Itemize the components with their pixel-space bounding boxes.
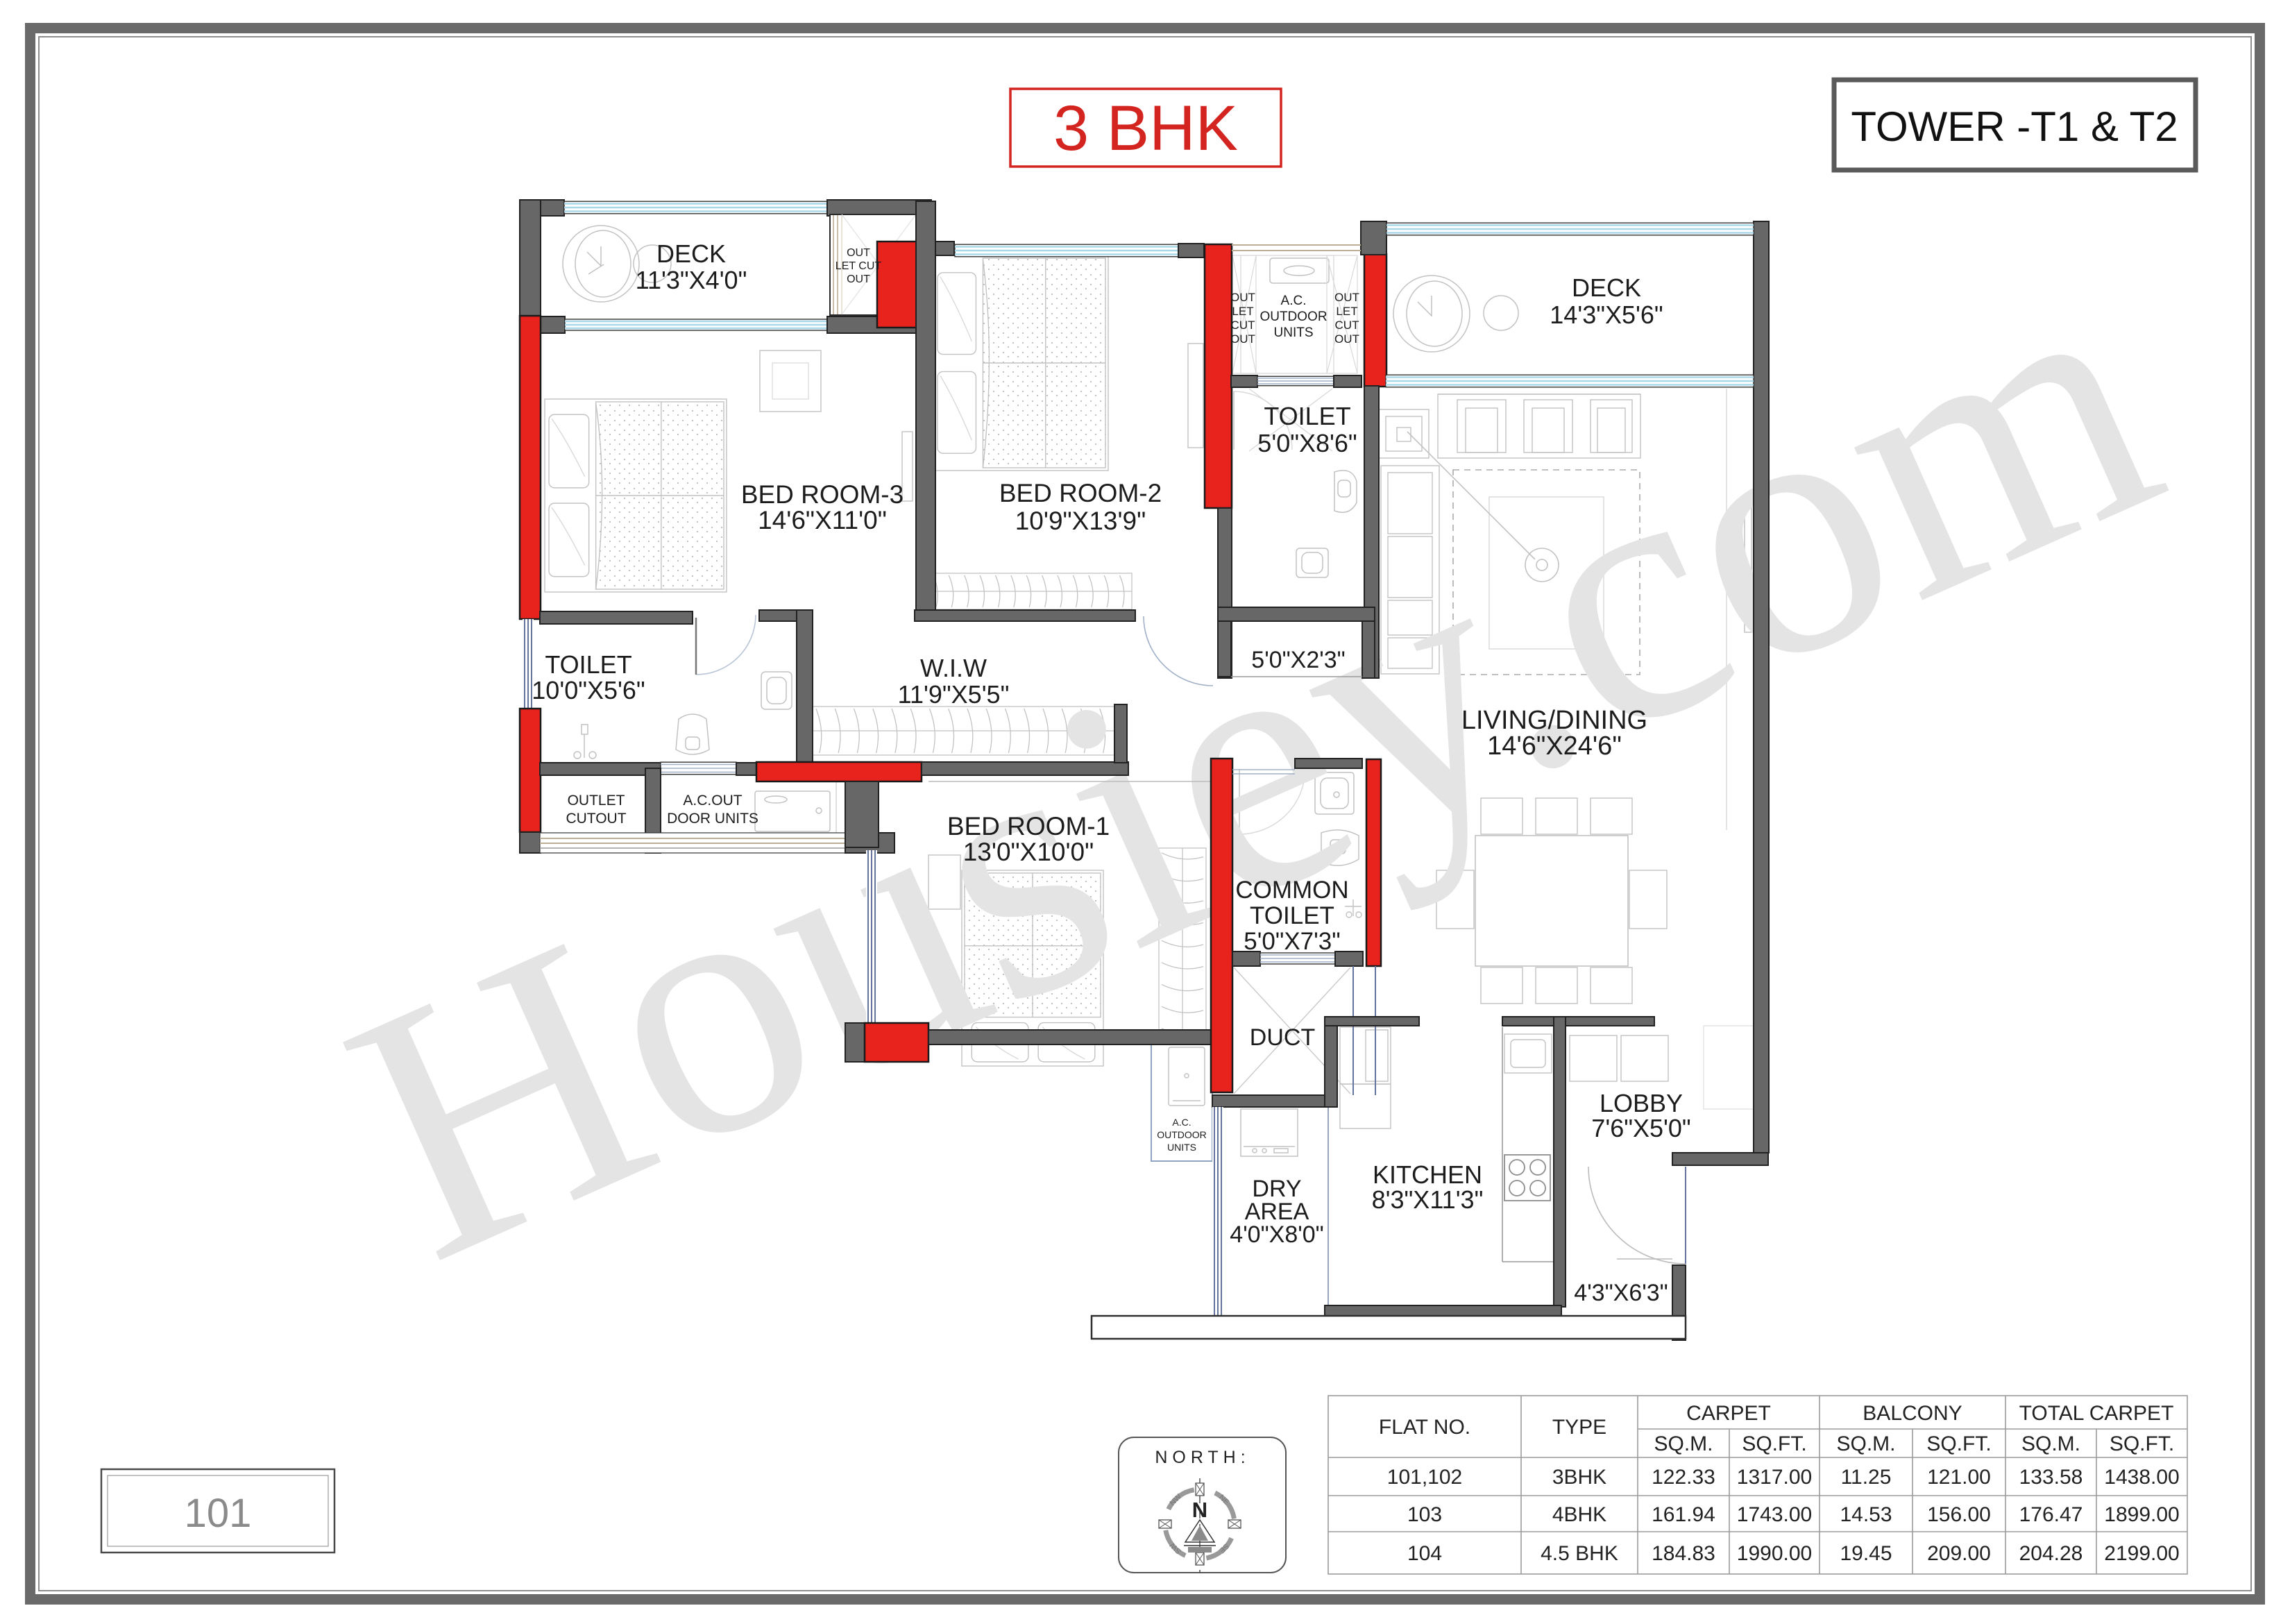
svg-text:BALCONY: BALCONY: [1863, 1402, 1962, 1425]
svg-text:LET: LET: [1336, 305, 1357, 318]
svg-text:14.53: 14.53: [1840, 1503, 1892, 1526]
svg-text:TOILET: TOILET: [545, 650, 631, 679]
svg-text:5'0"X8'6": 5'0"X8'6": [1257, 429, 1357, 457]
svg-text:A.C.OUT: A.C.OUT: [683, 793, 742, 809]
svg-text:161.94: 161.94: [1652, 1503, 1715, 1526]
svg-text:SQ.M.: SQ.M.: [1836, 1432, 1895, 1455]
svg-text:4.5 BHK: 4.5 BHK: [1541, 1542, 1618, 1565]
svg-text:OUT: OUT: [1334, 332, 1359, 346]
svg-text:LET CUT: LET CUT: [836, 260, 882, 272]
svg-text:8'3"X11'3": 8'3"X11'3": [1372, 1185, 1484, 1214]
svg-text:204.28: 204.28: [2019, 1542, 2083, 1565]
svg-text:SQ.M.: SQ.M.: [1654, 1432, 1713, 1455]
svg-text:BED ROOM-1: BED ROOM-1: [947, 812, 1110, 840]
svg-text:11'9"X5'5": 11'9"X5'5": [898, 680, 1010, 709]
svg-text:DECK: DECK: [1572, 273, 1641, 302]
svg-text:1990.00: 1990.00: [1737, 1542, 1812, 1565]
svg-text:SQ.FT.: SQ.FT.: [2110, 1432, 2174, 1455]
svg-text:176.47: 176.47: [2019, 1503, 2083, 1526]
svg-text:SQ.FT.: SQ.FT.: [1742, 1432, 1806, 1455]
svg-text:CARPET: CARPET: [1686, 1402, 1771, 1425]
svg-text:122.33: 122.33: [1652, 1466, 1715, 1489]
svg-text:N: N: [1192, 1498, 1207, 1522]
svg-text:TOILET: TOILET: [1264, 402, 1350, 430]
svg-text:1438.00: 1438.00: [2104, 1466, 2179, 1489]
svg-text:KITCHEN: KITCHEN: [1373, 1160, 1482, 1189]
svg-text:FLAT NO.: FLAT NO.: [1379, 1416, 1470, 1439]
svg-text:DECK: DECK: [656, 239, 726, 268]
svg-text:A.C.: A.C.: [1172, 1117, 1191, 1128]
svg-text:OUT: OUT: [847, 273, 870, 285]
svg-text:DUCT: DUCT: [1250, 1024, 1315, 1051]
svg-text:101,102: 101,102: [1387, 1466, 1462, 1489]
svg-text:7'6"X5'0": 7'6"X5'0": [1591, 1114, 1690, 1142]
svg-text:COMMON: COMMON: [1235, 877, 1348, 904]
svg-text:4'0"X8'0": 4'0"X8'0": [1230, 1221, 1323, 1248]
svg-text:14'6"X11'0": 14'6"X11'0": [758, 506, 887, 534]
svg-text:1899.00: 1899.00: [2104, 1503, 2179, 1526]
svg-text:UNITS: UNITS: [1274, 325, 1314, 340]
svg-text:14'3"X5'6": 14'3"X5'6": [1550, 301, 1663, 329]
svg-text:CUT: CUT: [1231, 319, 1255, 332]
svg-text:121.00: 121.00: [1927, 1466, 1991, 1489]
svg-text:4'3"X6'3": 4'3"X6'3": [1574, 1280, 1668, 1306]
svg-text:10'9"X13'9": 10'9"X13'9": [1015, 507, 1146, 535]
svg-text:TYPE: TYPE: [1552, 1416, 1606, 1439]
svg-text:LET: LET: [1232, 305, 1253, 318]
svg-text:TOWER -T1 & T2: TOWER -T1 & T2: [1851, 103, 2178, 150]
svg-text:11.25: 11.25: [1841, 1466, 1892, 1489]
svg-text:104: 104: [1407, 1542, 1442, 1565]
svg-text:TOTAL CARPET: TOTAL CARPET: [2019, 1402, 2174, 1425]
svg-text:2199.00: 2199.00: [2104, 1542, 2179, 1565]
svg-text:SQ.M.: SQ.M.: [2021, 1432, 2080, 1455]
svg-text:LOBBY: LOBBY: [1600, 1089, 1683, 1117]
svg-text:LIVING/DINING: LIVING/DINING: [1461, 706, 1647, 735]
svg-text:1743.00: 1743.00: [1737, 1503, 1812, 1526]
svg-text:101: 101: [185, 1491, 252, 1536]
svg-text:A.C.: A.C.: [1281, 294, 1307, 308]
svg-text:OUT: OUT: [1230, 291, 1255, 304]
svg-text:184.83: 184.83: [1652, 1542, 1715, 1565]
svg-text:4BHK: 4BHK: [1552, 1503, 1606, 1526]
svg-text:5'0"X2'3": 5'0"X2'3": [1251, 647, 1345, 673]
svg-text:OUTDOOR: OUTDOOR: [1157, 1129, 1207, 1140]
svg-text:3 BHK: 3 BHK: [1053, 93, 1238, 164]
svg-text:11'3"X4'0": 11'3"X4'0": [636, 266, 747, 294]
svg-text:OUT: OUT: [1334, 291, 1359, 304]
svg-text:NORTH:: NORTH:: [1155, 1448, 1250, 1467]
svg-text:103: 103: [1407, 1503, 1442, 1526]
svg-text:CUT: CUT: [1335, 319, 1359, 332]
svg-text:5'0"X7'3": 5'0"X7'3": [1244, 928, 1340, 955]
svg-text:UNITS: UNITS: [1167, 1142, 1196, 1153]
svg-text:BED ROOM-3: BED ROOM-3: [741, 480, 904, 509]
svg-text:156.00: 156.00: [1927, 1503, 1991, 1526]
svg-text:OUT: OUT: [1230, 332, 1255, 346]
svg-text:209.00: 209.00: [1927, 1542, 1991, 1565]
svg-text:13'0"X10'0": 13'0"X10'0": [963, 838, 1094, 866]
svg-text:DOOR UNITS: DOOR UNITS: [667, 811, 758, 827]
svg-text:OUTLET: OUTLET: [568, 793, 625, 809]
svg-text:133.58: 133.58: [2019, 1466, 2083, 1489]
svg-text:SQ.FT.: SQ.FT.: [1926, 1432, 1991, 1455]
svg-text:TOILET: TOILET: [1250, 902, 1334, 929]
svg-text:19.45: 19.45: [1840, 1542, 1892, 1565]
svg-text:W.I.W: W.I.W: [920, 654, 987, 682]
svg-text:14'6"X24'6": 14'6"X24'6": [1487, 731, 1622, 761]
svg-text:CUTOUT: CUTOUT: [566, 811, 626, 827]
svg-text:OUTDOOR: OUTDOOR: [1259, 310, 1327, 324]
svg-text:OUT: OUT: [847, 247, 870, 259]
svg-text:1317.00: 1317.00: [1737, 1466, 1812, 1489]
svg-text:BED ROOM-2: BED ROOM-2: [999, 479, 1162, 507]
svg-text:10'0"X5'6": 10'0"X5'6": [532, 676, 645, 704]
svg-text:3BHK: 3BHK: [1552, 1466, 1606, 1489]
